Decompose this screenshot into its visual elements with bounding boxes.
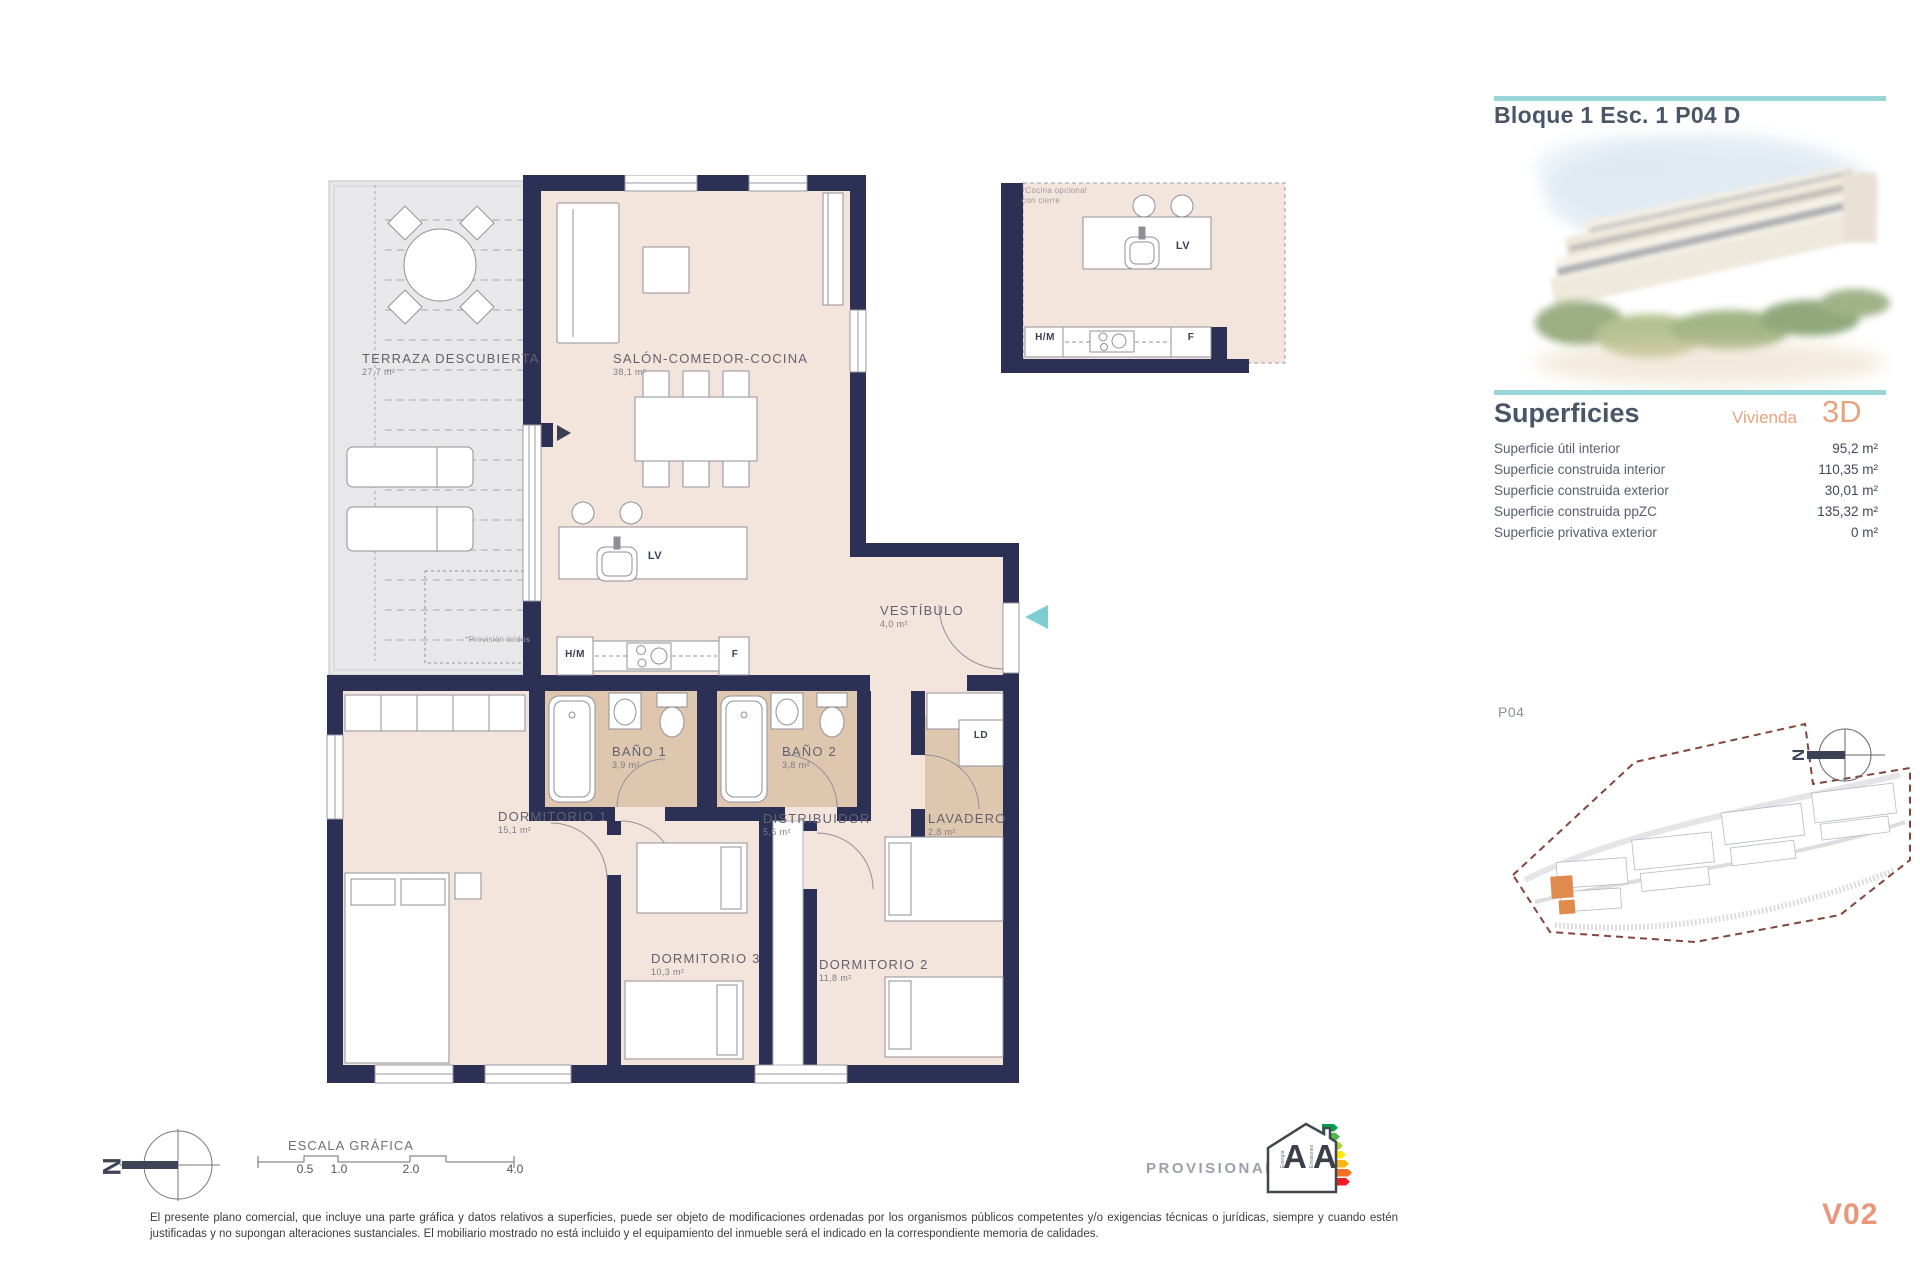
- washer-box: [959, 720, 1003, 766]
- room-label-terraza: TERRAZA DESCUBIERTA 27,7 m²: [362, 352, 540, 377]
- provisional-label: PROVISIONAL: [1146, 1160, 1277, 1177]
- scale-tick: 0.5: [292, 1162, 318, 1176]
- vivienda-label: Vivienda: [1732, 408, 1797, 428]
- unit-code: 3D: [1822, 394, 1862, 430]
- legal-disclaimer: El presente plano comercial, que incluye…: [150, 1210, 1398, 1243]
- table-row: Superficie privativa exterior0 m²: [1494, 525, 1878, 540]
- site-plan: [1495, 710, 1915, 950]
- dishwasher-label: LV: [640, 550, 670, 562]
- room-label-distribuidor: DISTRIBUIDOR 5,6 m²: [763, 812, 871, 837]
- entrance-arrow-icon: [1025, 605, 1048, 629]
- inset-oven-micro-label: H/M: [1026, 332, 1064, 343]
- dining-table: [635, 397, 757, 461]
- toilet-2: [820, 707, 844, 737]
- room-label-lavadero: LAVADERO 2,8 m²: [928, 812, 1006, 837]
- room-label-bano2: BAÑO 2 3,8 m²: [782, 745, 837, 770]
- table-row: Superficie construida ppZC135,32 m²: [1494, 504, 1878, 519]
- scale-tick: 1.0: [326, 1162, 352, 1176]
- table-row: Superficie útil interior95,2 m²: [1494, 441, 1878, 456]
- highlighted-unit: [1550, 875, 1575, 914]
- scale-tick: 2.0: [398, 1162, 424, 1176]
- inset-dishwasher-label: LV: [1163, 240, 1203, 252]
- superficies-heading: Superficies: [1494, 398, 1640, 429]
- north-letter: N: [99, 1157, 128, 1175]
- wardrobe: [345, 695, 525, 731]
- kitchen-option-note: *Cocina opcional con cierre: [1022, 186, 1094, 206]
- toilet-1: [660, 707, 684, 737]
- sofa: [557, 203, 619, 343]
- room-label-vestibulo: VESTÍBULO 4,0 m²: [880, 604, 964, 629]
- header-accent-line: [1494, 96, 1886, 101]
- energy-letter: A: [1283, 1138, 1307, 1176]
- nightstand: [455, 873, 481, 899]
- table-row: Superficie construida interior110,35 m²: [1494, 462, 1878, 477]
- room-label-dormitorio3: DORMITORIO 3 10,3 m²: [651, 952, 761, 977]
- side-table: [643, 247, 689, 293]
- room-label-salon: SALÓN-COMEDOR-COCINA 38,1 m²: [613, 352, 808, 377]
- hob: [627, 643, 671, 669]
- awning-note: *Previsión toldos: [440, 635, 530, 645]
- oven-micro-label: H/M: [557, 649, 593, 660]
- terrace-area: [329, 181, 531, 675]
- washer-label: LD: [959, 730, 1003, 741]
- north-arrow: [110, 1125, 250, 1210]
- room-label-dormitorio1: DORMITORIO 1 15,1 m²: [498, 810, 608, 835]
- fridge-label: F: [720, 649, 750, 660]
- table-row: Superficie construida exterior30,01 m²: [1494, 483, 1878, 498]
- entrance-door-opening: [1003, 603, 1019, 673]
- superficies-table: Superficie útil interior95,2 m² Superfic…: [1494, 441, 1878, 546]
- room-label-bano1: BAÑO 1 3,9 m²: [612, 745, 667, 770]
- energy-certificate-icon: [1262, 1118, 1354, 1198]
- plan-version: V02: [1822, 1198, 1878, 1232]
- energy-letter: A: [1313, 1138, 1337, 1176]
- site-north-letter: N: [1789, 749, 1809, 761]
- building-rendering: [1525, 118, 1895, 393]
- shelf: [823, 193, 843, 305]
- inset-fridge-label: F: [1171, 332, 1211, 343]
- room-label-dormitorio2: DORMITORIO 2 11,8 m²: [819, 958, 929, 983]
- shaft: [773, 821, 803, 1065]
- scale-tick: 4.0: [502, 1162, 528, 1176]
